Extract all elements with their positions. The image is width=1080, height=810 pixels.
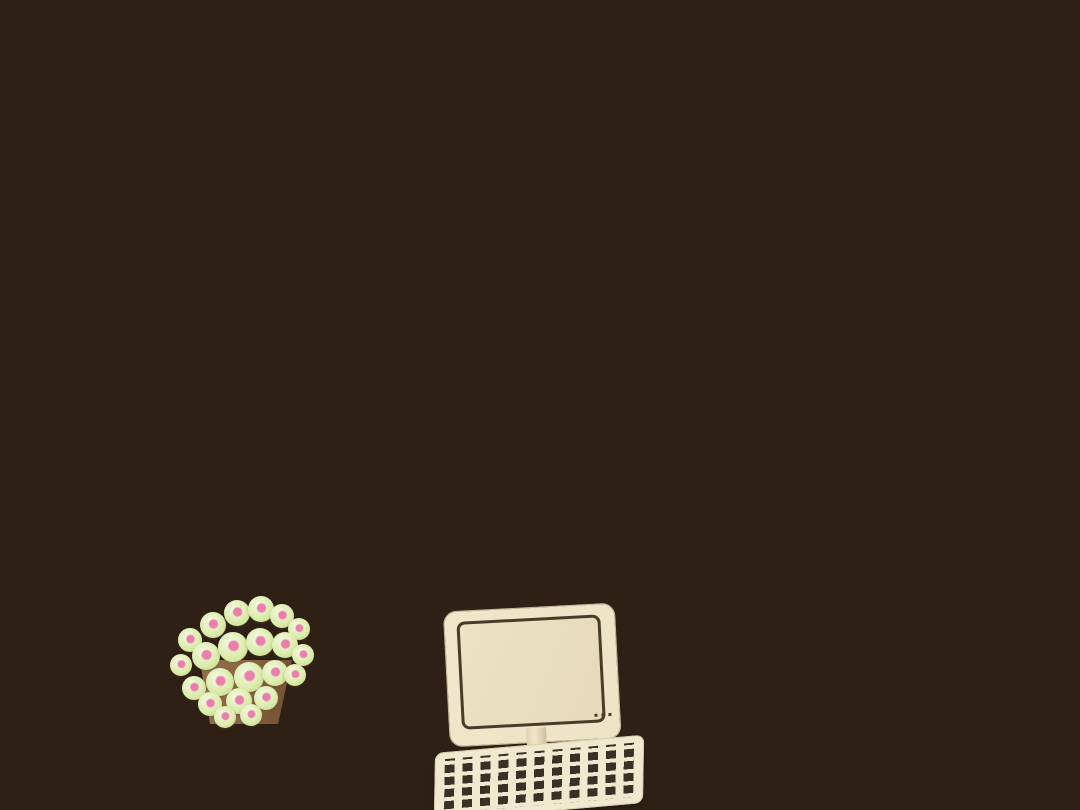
flower-bud bbox=[292, 644, 314, 666]
flower-bud bbox=[284, 664, 306, 686]
flower-bud bbox=[246, 628, 274, 656]
flower-bud bbox=[218, 632, 248, 662]
flower-bud bbox=[240, 704, 262, 726]
monitor-body bbox=[444, 604, 621, 747]
model-photograph bbox=[0, 0, 1080, 810]
monitor-buttons bbox=[594, 714, 597, 717]
flower-bud bbox=[170, 654, 192, 676]
flower-bud bbox=[192, 642, 220, 670]
monitor-screen bbox=[456, 614, 605, 729]
flower-bud bbox=[200, 612, 226, 638]
keyboard-keys bbox=[444, 743, 634, 810]
flower-bud bbox=[214, 706, 236, 728]
flower-bud bbox=[224, 600, 250, 626]
